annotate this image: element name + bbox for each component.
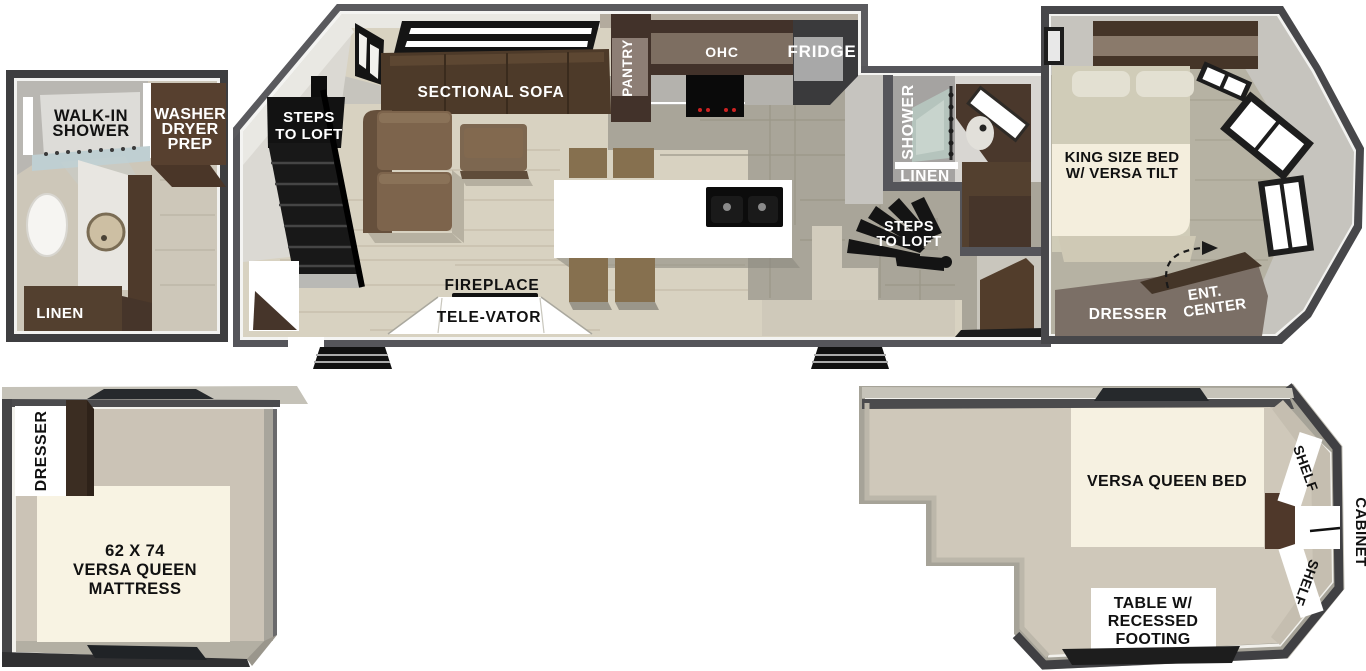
- svg-text:LINEN: LINEN: [36, 305, 84, 322]
- svg-text:SECTIONAL SOFA: SECTIONAL SOFA: [418, 84, 565, 101]
- svg-text:KING SIZE BED: KING SIZE BED: [1065, 149, 1180, 166]
- svg-text:MATTRESS: MATTRESS: [89, 580, 182, 598]
- svg-text:DRESSER: DRESSER: [1089, 306, 1167, 323]
- svg-text:W/ VERSA TILT: W/ VERSA TILT: [1066, 165, 1178, 182]
- svg-text:STEPS: STEPS: [283, 109, 335, 126]
- svg-text:FRIDGE: FRIDGE: [787, 42, 856, 61]
- svg-text:TELE-VATOR: TELE-VATOR: [437, 309, 541, 326]
- svg-text:LINEN: LINEN: [900, 168, 950, 185]
- svg-text:PREP: PREP: [168, 136, 213, 153]
- svg-text:VERSA QUEEN BED: VERSA QUEEN BED: [1087, 473, 1247, 490]
- svg-text:TABLE W/: TABLE W/: [1114, 595, 1193, 612]
- svg-text:OHC: OHC: [705, 44, 739, 60]
- svg-text:SHOWER: SHOWER: [52, 122, 129, 140]
- svg-text:CABINET: CABINET: [1352, 497, 1366, 566]
- svg-text:RECESSED: RECESSED: [1108, 613, 1198, 630]
- svg-text:PANTRY: PANTRY: [620, 39, 635, 97]
- svg-text:TO LOFT: TO LOFT: [876, 234, 941, 250]
- svg-text:TO LOFT: TO LOFT: [275, 126, 342, 143]
- svg-text:FIREPLACE: FIREPLACE: [444, 277, 539, 294]
- svg-text:STEPS: STEPS: [884, 219, 934, 235]
- svg-text:SHOWER: SHOWER: [900, 84, 917, 160]
- svg-text:62 X 74: 62 X 74: [105, 542, 165, 560]
- svg-text:DRESSER: DRESSER: [33, 411, 50, 492]
- svg-text:VERSA QUEEN: VERSA QUEEN: [73, 561, 197, 579]
- svg-text:FOOTING: FOOTING: [1116, 631, 1191, 648]
